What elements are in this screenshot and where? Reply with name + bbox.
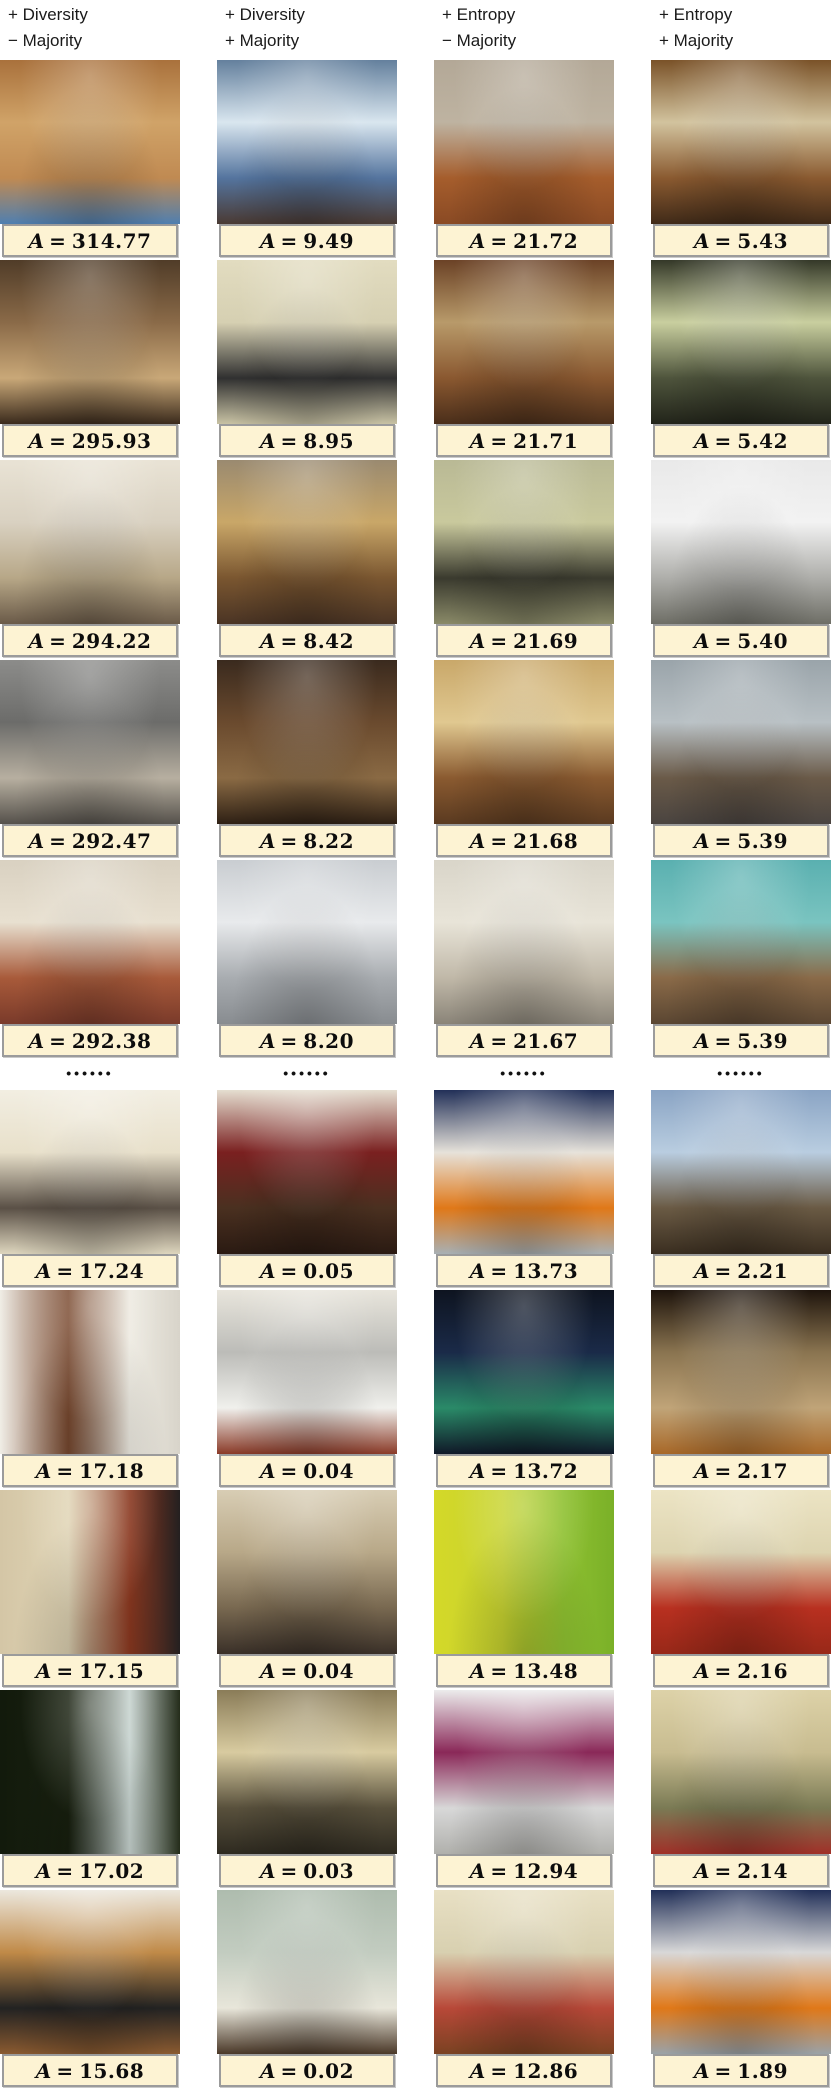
score-label: A=21.72 (436, 224, 612, 257)
image-cell: A=21.69 (434, 460, 614, 657)
score-value: 21.71 (513, 429, 578, 453)
image-cell: A=5.40 (651, 460, 831, 657)
score-value: 21.72 (513, 229, 578, 253)
score-value: 5.42 (737, 429, 788, 453)
score-symbol: A (470, 2059, 486, 2083)
score-label: A=21.69 (436, 624, 612, 657)
score-symbol: A (694, 1259, 710, 1283)
score-symbol: A (260, 1029, 276, 1053)
score-value: 17.02 (79, 1859, 144, 1883)
image-cell: A=8.95 (217, 260, 397, 457)
room-photo-olive-living-room-red-rug (651, 1690, 831, 1854)
score-symbol: A (260, 629, 276, 653)
equals-sign: = (490, 2059, 507, 2083)
image-cell: A=0.03 (217, 1690, 397, 1887)
score-label: A=21.71 (436, 424, 612, 457)
score-symbol: A (694, 1029, 710, 1053)
score-label: A=13.48 (436, 1654, 612, 1687)
equals-sign: = (715, 1029, 732, 1053)
score-label: A=295.93 (2, 424, 178, 457)
room-photo-sepia-cafe-tall-windows (217, 1490, 397, 1654)
image-cell: A=8.42 (217, 460, 397, 657)
score-symbol: A (260, 829, 276, 853)
image-cell: A=5.39 (651, 660, 831, 857)
room-photo-white-kitchen-french-doors (434, 860, 614, 1024)
equals-sign: = (49, 829, 66, 853)
score-value: 2.21 (737, 1259, 788, 1283)
equals-sign: = (715, 429, 732, 453)
score-label: A=314.77 (2, 224, 178, 257)
score-value: 2.14 (737, 1859, 788, 1883)
equals-sign: = (281, 629, 298, 653)
score-value: 292.38 (72, 1029, 152, 1053)
column-header-entropy-minus-majority: + Entropy − Majority (434, 2, 614, 58)
image-cell: A=13.73 (434, 1090, 614, 1287)
room-photo-dark-living-room-red-curtains (217, 1090, 397, 1254)
score-label: A=5.39 (653, 1024, 829, 1057)
score-symbol: A (29, 1029, 45, 1053)
image-cell: A=2.17 (651, 1290, 831, 1487)
score-value: 13.73 (513, 1259, 578, 1283)
room-photo-gray-library-lounge (0, 660, 180, 824)
room-photo-bay-window-sitting-room (217, 1690, 397, 1854)
image-cell: A=12.86 (434, 1890, 614, 2087)
score-value: 0.04 (303, 1459, 354, 1483)
score-symbol: A (260, 1859, 276, 1883)
equals-sign: = (281, 229, 298, 253)
score-symbol: A (694, 1459, 710, 1483)
score-symbol: A (694, 429, 710, 453)
score-label: A=8.42 (219, 624, 395, 657)
image-cell: A=0.04 (217, 1490, 397, 1687)
score-label: A=2.17 (653, 1454, 829, 1487)
score-value: 1.89 (737, 2059, 788, 2083)
score-label: A=5.40 (653, 624, 829, 657)
equals-sign: = (490, 1259, 507, 1283)
equals-sign: = (281, 829, 298, 853)
image-cell: A=21.67 (434, 860, 614, 1057)
score-label: A=8.22 (219, 824, 395, 857)
image-cell: A=12.94 (434, 1690, 614, 1887)
score-value: 12.86 (513, 2059, 578, 2083)
equals-sign: = (281, 1259, 298, 1283)
score-label: A=12.94 (436, 1854, 612, 1887)
score-label: A=13.72 (436, 1454, 612, 1487)
score-label: A=12.86 (436, 2054, 612, 2087)
equals-sign: = (490, 229, 507, 253)
score-value: 0.05 (303, 1259, 354, 1283)
image-cell: A=2.16 (651, 1490, 831, 1687)
image-cell: A=2.21 (651, 1090, 831, 1287)
equals-sign: = (715, 629, 732, 653)
score-label: A=17.18 (2, 1454, 178, 1487)
image-cell: A=5.43 (651, 60, 831, 257)
equals-sign: = (490, 1659, 507, 1683)
score-value: 292.47 (72, 829, 152, 853)
ellipsis-dots: •••••• (651, 1057, 831, 1090)
ellipsis-dots: •••••• (217, 1057, 397, 1090)
equals-sign: = (56, 1859, 73, 1883)
score-label: A=15.68 (2, 2054, 178, 2087)
image-cell: A=21.72 (434, 60, 614, 257)
room-photo-cream-kitchen-black-oven (217, 260, 397, 424)
score-symbol: A (694, 1859, 710, 1883)
equals-sign: = (490, 629, 507, 653)
score-label: A=1.89 (653, 2054, 829, 2087)
score-label: A=5.39 (653, 824, 829, 857)
score-value: 0.02 (303, 2059, 354, 2083)
equals-sign: = (715, 1859, 732, 1883)
score-symbol: A (470, 1459, 486, 1483)
score-symbol: A (260, 1459, 276, 1483)
room-photo-victorian-living-room (434, 1890, 614, 2054)
score-label: A=292.47 (2, 824, 178, 857)
room-photo-beige-living-room-ceiling-fan (0, 460, 180, 624)
score-value: 8.20 (303, 1029, 354, 1053)
room-photo-dark-apartment-bright-window (0, 1690, 180, 1854)
score-value: 17.24 (79, 1259, 144, 1283)
score-symbol: A (36, 1259, 52, 1283)
score-symbol: A (36, 1459, 52, 1483)
score-symbol: A (470, 1029, 486, 1053)
score-value: 0.03 (303, 1859, 354, 1883)
equals-sign: = (281, 1659, 298, 1683)
score-symbol: A (470, 829, 486, 853)
score-value: 13.48 (513, 1659, 578, 1683)
equals-sign: = (281, 1859, 298, 1883)
score-label: A=0.04 (219, 1454, 395, 1487)
score-label: A=0.04 (219, 1654, 395, 1687)
score-symbol: A (470, 1259, 486, 1283)
score-label: A=17.02 (2, 1854, 178, 1887)
image-cell: A=8.20 (217, 860, 397, 1057)
image-cell: A=294.22 (0, 460, 180, 657)
score-symbol: A (694, 629, 710, 653)
image-cell: A=9.49 (217, 60, 397, 257)
score-symbol: A (694, 829, 710, 853)
score-value: 8.42 (303, 629, 354, 653)
equals-sign: = (490, 1459, 507, 1483)
score-value: 21.68 (513, 829, 578, 853)
room-photo-dark-green-kitchen (651, 260, 831, 424)
room-photo-office-orange-crates-gray (651, 1890, 831, 2054)
header-line: − Majority (8, 28, 180, 54)
score-symbol: A (470, 1659, 486, 1683)
equals-sign: = (715, 1459, 732, 1483)
score-label: A=8.95 (219, 424, 395, 457)
ranking-figure: + Diversity − Majority + Diversity + Maj… (0, 0, 831, 2087)
image-cell: A=21.71 (434, 260, 614, 457)
score-label: A=17.15 (2, 1654, 178, 1687)
image-cell: A=13.72 (434, 1290, 614, 1487)
score-label: A=0.05 (219, 1254, 395, 1287)
room-photo-empty-room-hardwood-floor (434, 60, 614, 224)
image-cell: A=292.47 (0, 660, 180, 857)
room-photo-ornate-cherry-kitchen (434, 260, 614, 424)
room-photo-gym-office-red-carpet (651, 1490, 831, 1654)
score-value: 17.15 (79, 1659, 144, 1683)
room-photo-commercial-kitchen-hood (217, 860, 397, 1024)
score-symbol: A (694, 1659, 710, 1683)
score-label: A=292.38 (2, 1024, 178, 1057)
equals-sign: = (715, 1659, 732, 1683)
image-cell: A=2.14 (651, 1690, 831, 1887)
header-line: + Majority (225, 28, 397, 54)
score-value: 5.39 (737, 829, 788, 853)
room-photo-warm-kitchen-dining (434, 660, 614, 824)
score-value: 0.04 (303, 1659, 354, 1683)
image-cell: A=15.68 (0, 1890, 180, 2087)
equals-sign: = (56, 1259, 73, 1283)
equals-sign: = (49, 229, 66, 253)
score-symbol: A (36, 1659, 52, 1683)
score-value: 314.77 (72, 229, 152, 253)
image-cell: A=314.77 (0, 60, 180, 257)
image-cell: A=17.18 (0, 1290, 180, 1487)
equals-sign: = (490, 829, 507, 853)
score-value: 2.16 (737, 1659, 788, 1683)
equals-sign: = (49, 629, 66, 653)
score-symbol: A (260, 429, 276, 453)
score-value: 5.40 (737, 629, 788, 653)
score-symbol: A (694, 229, 710, 253)
score-value: 13.72 (513, 1459, 578, 1483)
score-symbol: A (470, 429, 486, 453)
top-ranked-block: A=314.77A=9.49A=21.72A=5.43A=295.93A=8.9… (0, 60, 831, 1057)
image-cell: A=13.48 (434, 1490, 614, 1687)
room-photo-oak-kitchen-black-counter (0, 1890, 180, 2054)
score-symbol: A (29, 229, 45, 253)
score-symbol: A (470, 1859, 486, 1883)
score-value: 17.18 (79, 1459, 144, 1483)
room-photo-lamp-lit-living-room (0, 260, 180, 424)
score-value: 21.67 (513, 1029, 578, 1053)
room-photo-blue-traditional-living-room (217, 60, 397, 224)
score-symbol: A (36, 1859, 52, 1883)
score-value: 2.17 (737, 1459, 788, 1483)
image-cell: A=0.02 (217, 1890, 397, 2087)
equals-sign: = (715, 1259, 732, 1283)
score-value: 15.68 (79, 2059, 144, 2083)
ellipsis-separator-row: •••••• •••••• •••••• •••••• (0, 1057, 831, 1090)
score-label: A=0.03 (219, 1854, 395, 1887)
equals-sign: = (56, 1659, 73, 1683)
equals-sign: = (49, 1029, 66, 1053)
score-value: 9.49 (303, 229, 354, 253)
column-header-entropy-plus-majority: + Entropy + Majority (651, 2, 831, 58)
ellipsis-dots: •••••• (0, 1057, 180, 1090)
room-photo-white-room-wood-slat-divider (0, 1290, 180, 1454)
image-cell: A=17.15 (0, 1490, 180, 1687)
score-value: 12.94 (513, 1859, 578, 1883)
score-label: A=17.24 (2, 1254, 178, 1287)
image-cell: A=8.22 (217, 660, 397, 857)
score-label: A=0.02 (219, 2054, 395, 2087)
score-label: A=8.20 (219, 1024, 395, 1057)
room-photo-kitchen-with-hanging-pots (217, 1290, 397, 1454)
score-symbol: A (470, 629, 486, 653)
room-photo-office-with-orange-crates (434, 1090, 614, 1254)
score-symbol: A (260, 2059, 276, 2083)
header-line: + Entropy (442, 2, 614, 28)
column-header-diversity-minus-majority: + Diversity − Majority (0, 2, 180, 58)
equals-sign: = (490, 429, 507, 453)
room-photo-brown-couch-closeup (651, 1290, 831, 1454)
score-value: 8.22 (303, 829, 354, 853)
score-symbol: A (260, 1259, 276, 1283)
room-photo-gray-office-kitchenette (651, 660, 831, 824)
equals-sign: = (715, 829, 732, 853)
room-photo-rust-red-bar-kitchenette (0, 1490, 180, 1654)
score-value: 295.93 (72, 429, 152, 453)
image-cell: A=0.05 (217, 1090, 397, 1287)
score-label: A=2.16 (653, 1654, 829, 1687)
score-symbol: A (260, 1659, 276, 1683)
score-value: 8.95 (303, 429, 354, 453)
header-line: − Majority (442, 28, 614, 54)
room-photo-bright-cream-dining-room (0, 1090, 180, 1254)
equals-sign: = (281, 2059, 298, 2083)
score-symbol: A (260, 229, 276, 253)
room-photo-sage-room-white-armchair (217, 1890, 397, 2054)
equals-sign: = (281, 1459, 298, 1483)
header-line: + Diversity (8, 2, 180, 28)
column-header-diversity-plus-majority: + Diversity + Majority (217, 2, 397, 58)
score-label: A=2.21 (653, 1254, 829, 1287)
column-headers: + Diversity − Majority + Diversity + Maj… (0, 2, 831, 58)
ellipsis-dots: •••••• (434, 1057, 614, 1090)
score-label: A=5.43 (653, 224, 829, 257)
image-cell: A=21.68 (434, 660, 614, 857)
room-photo-marble-island-counter (217, 460, 397, 624)
score-symbol: A (29, 629, 45, 653)
image-cell: A=5.39 (651, 860, 831, 1057)
score-symbol: A (29, 429, 45, 453)
equals-sign: = (490, 1029, 507, 1053)
room-photo-high-rise-living-room-view (651, 1090, 831, 1254)
room-photo-pale-green-cabinet-kitchen (434, 460, 614, 624)
score-symbol: A (470, 229, 486, 253)
equals-sign: = (56, 2059, 73, 2083)
image-cell: A=5.42 (651, 260, 831, 457)
score-label: A=2.14 (653, 1854, 829, 1887)
score-value: 21.69 (513, 629, 578, 653)
equals-sign: = (281, 1029, 298, 1053)
image-cell: A=1.89 (651, 1890, 831, 2087)
image-cell: A=17.24 (0, 1090, 180, 1287)
score-label: A=294.22 (2, 624, 178, 657)
room-photo-wood-beam-living-room (0, 60, 180, 224)
score-label: A=9.49 (219, 224, 395, 257)
room-photo-chartreuse-wallpaper-sofa (434, 1490, 614, 1654)
equals-sign: = (56, 1459, 73, 1483)
room-photo-white-room-magenta-trim (434, 1690, 614, 1854)
equals-sign: = (490, 1859, 507, 1883)
room-photo-dark-wood-lounge (217, 660, 397, 824)
header-line: + Majority (659, 28, 831, 54)
image-cell: A=292.38 (0, 860, 180, 1057)
equals-sign: = (49, 429, 66, 453)
score-value: 5.43 (737, 229, 788, 253)
score-value: 5.39 (737, 1029, 788, 1053)
header-line: + Entropy (659, 2, 831, 28)
score-value: 294.22 (72, 629, 152, 653)
header-line: + Diversity (225, 2, 397, 28)
room-photo-cherry-wood-kitchen (651, 60, 831, 224)
image-cell: A=17.02 (0, 1690, 180, 1887)
image-cell: A=0.04 (217, 1290, 397, 1487)
equals-sign: = (281, 429, 298, 453)
bottom-ranked-block: A=17.24A=0.05A=13.73A=2.21A=17.18A=0.04A… (0, 1090, 831, 2087)
image-cell: A=295.93 (0, 260, 180, 457)
room-photo-teal-messy-utility-room (651, 860, 831, 1024)
equals-sign: = (715, 229, 732, 253)
room-photo-white-modern-kitchen (651, 460, 831, 624)
score-label: A=5.42 (653, 424, 829, 457)
room-photo-dark-control-room-screens (434, 1290, 614, 1454)
score-symbol: A (36, 2059, 52, 2083)
room-photo-fireplace-living-room-rug (0, 860, 180, 1024)
equals-sign: = (715, 2059, 732, 2083)
score-label: A=13.73 (436, 1254, 612, 1287)
score-label: A=21.68 (436, 824, 612, 857)
score-symbol: A (694, 2059, 710, 2083)
score-label: A=21.67 (436, 1024, 612, 1057)
score-symbol: A (29, 829, 45, 853)
